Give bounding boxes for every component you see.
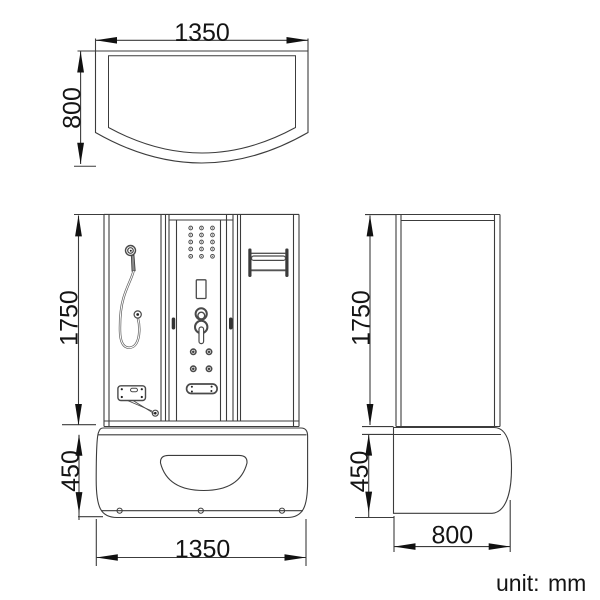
svg-text:450: 450 xyxy=(57,450,85,492)
svg-text:1350: 1350 xyxy=(174,19,230,47)
svg-text:800: 800 xyxy=(431,522,473,550)
svg-text:1750: 1750 xyxy=(347,290,375,346)
svg-text:unit:: unit: xyxy=(496,570,539,596)
svg-text:1750: 1750 xyxy=(56,290,84,346)
svg-text:mm: mm xyxy=(548,570,586,596)
svg-text:1350: 1350 xyxy=(175,535,231,563)
svg-text:800: 800 xyxy=(59,87,87,129)
svg-text:450: 450 xyxy=(346,451,374,493)
